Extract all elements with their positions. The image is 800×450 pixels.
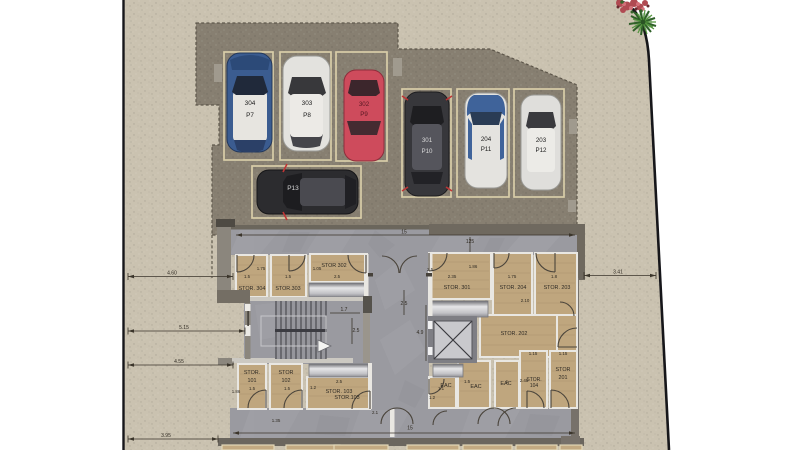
svg-text:125: 125 [466,239,475,245]
svg-text:1.2: 1.2 [310,385,317,390]
svg-text:1.75: 1.75 [508,274,517,279]
svg-text:STOR. 304: STOR. 304 [239,286,266,292]
svg-text:EAC: EAC [470,384,481,390]
svg-text:1.5: 1.5 [249,386,256,391]
svg-text:STOR.303: STOR.303 [275,286,300,292]
svg-text:1.8: 1.8 [551,274,558,279]
svg-text:4.55: 4.55 [174,359,184,365]
svg-text:1.15: 1.15 [559,351,568,356]
svg-text:15: 15 [401,230,407,236]
svg-text:STOR. 203: STOR. 203 [544,285,571,291]
svg-text:1.75: 1.75 [257,266,266,271]
svg-text:STOR.: STOR. [244,370,260,376]
svg-text:2.1: 2.1 [372,410,379,415]
svg-text:4.60: 4.60 [167,271,177,277]
svg-text:P8: P8 [303,112,311,119]
svg-text:STOR. 202: STOR. 202 [501,331,528,337]
svg-text:STOR.103: STOR.103 [334,395,359,401]
svg-text:1.7: 1.7 [341,307,348,313]
svg-text:304: 304 [245,100,256,107]
svg-text:2.5: 2.5 [353,328,360,334]
svg-text:STOR. 301: STOR. 301 [444,285,471,291]
svg-text:104: 104 [530,383,539,389]
svg-text:1.35: 1.35 [272,418,281,423]
svg-text:1.5: 1.5 [285,274,292,279]
svg-text:302: 302 [359,101,370,108]
svg-text:1.05: 1.05 [313,266,322,271]
svg-text:1.5: 1.5 [244,274,251,279]
svg-text:2.35: 2.35 [448,274,457,279]
svg-text:2.45: 2.45 [520,378,529,383]
svg-text:203: 203 [536,137,547,144]
svg-text:2.5: 2.5 [336,379,343,384]
svg-text:1.86: 1.86 [469,264,478,269]
svg-text:P9: P9 [360,111,368,118]
svg-text:P10: P10 [421,148,433,155]
svg-text:P7: P7 [246,112,254,119]
svg-text:1.2: 1.2 [429,395,436,400]
svg-text:3.41: 3.41 [613,270,623,276]
svg-text:P11: P11 [481,146,492,153]
svg-text:301: 301 [422,137,433,144]
svg-text:2.5: 2.5 [401,301,408,307]
svg-text:STOR: STOR [279,370,294,376]
svg-text:STOR: STOR [556,367,571,373]
svg-text:15: 15 [407,426,413,432]
svg-text:101: 101 [248,378,257,384]
svg-text:303: 303 [302,100,313,107]
svg-text:STOR 302: STOR 302 [321,263,346,269]
svg-text:1.5: 1.5 [464,379,471,384]
svg-text:1.1: 1.1 [438,386,445,391]
svg-text:102: 102 [282,378,291,384]
svg-text:P12: P12 [535,147,547,154]
svg-text:2.5: 2.5 [334,274,341,279]
svg-text:1.5: 1.5 [284,386,291,391]
svg-text:P13: P13 [287,185,299,192]
svg-text:3.95: 3.95 [161,433,171,439]
svg-text:204: 204 [481,136,492,143]
svg-text:4.9: 4.9 [417,330,424,336]
svg-text:1.86: 1.86 [232,389,241,394]
svg-text:2.5: 2.5 [427,267,434,272]
svg-text:2.10: 2.10 [521,298,530,303]
svg-text:201: 201 [559,375,568,381]
svg-text:STOR. 204: STOR. 204 [500,285,527,291]
svg-text:1.15: 1.15 [529,351,538,356]
svg-text:5.15: 5.15 [179,325,189,331]
